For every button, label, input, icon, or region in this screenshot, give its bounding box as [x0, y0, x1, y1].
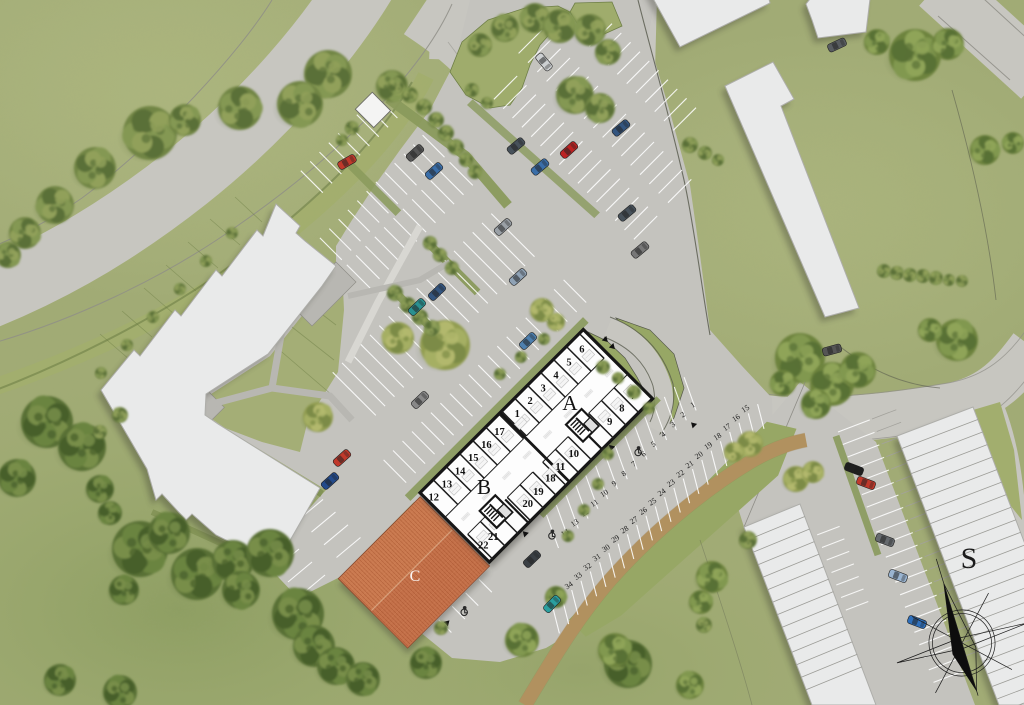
svg-text:14: 14 — [455, 466, 466, 477]
svg-text:11: 11 — [555, 462, 565, 473]
svg-text:4: 4 — [553, 370, 559, 381]
svg-text:21: 21 — [488, 532, 499, 543]
svg-text:18: 18 — [545, 474, 556, 485]
svg-text:20: 20 — [523, 499, 534, 510]
svg-text:1: 1 — [515, 409, 520, 420]
svg-text:C: C — [410, 568, 421, 585]
svg-text:6: 6 — [579, 345, 584, 356]
svg-text:13: 13 — [442, 480, 453, 491]
svg-text:B: B — [477, 475, 491, 499]
svg-text:9: 9 — [607, 417, 612, 428]
svg-text:3: 3 — [540, 383, 545, 394]
svg-text:S: S — [961, 542, 978, 575]
svg-text:17: 17 — [494, 427, 505, 438]
svg-text:19: 19 — [533, 487, 544, 498]
svg-text:10: 10 — [569, 449, 580, 460]
svg-text:2: 2 — [527, 396, 532, 407]
svg-text:A: A — [562, 391, 578, 415]
svg-text:5: 5 — [566, 357, 571, 368]
svg-text:22: 22 — [478, 541, 489, 552]
svg-text:15: 15 — [468, 453, 479, 464]
svg-text:8: 8 — [619, 404, 624, 415]
svg-text:12: 12 — [429, 493, 440, 504]
svg-text:16: 16 — [481, 440, 492, 451]
